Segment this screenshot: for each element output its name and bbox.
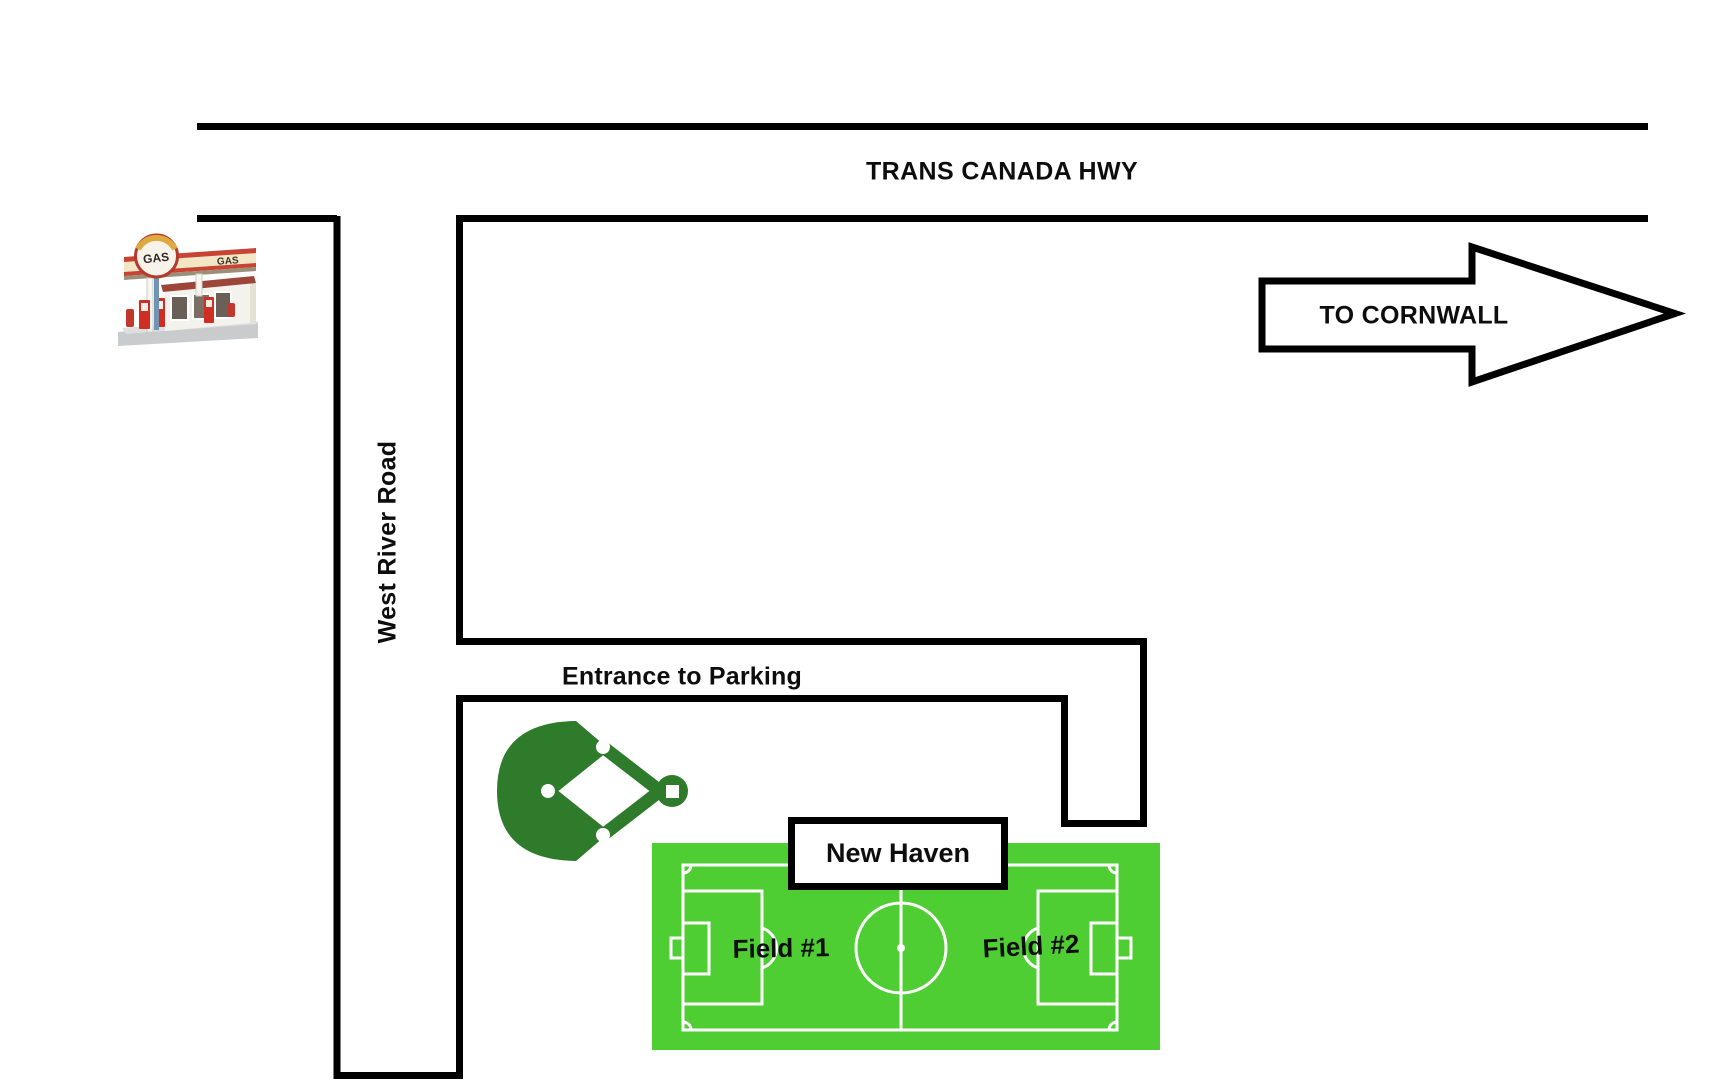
west-river-road-label: West River Road xyxy=(376,441,401,644)
gas-window xyxy=(171,296,188,320)
baseball-base xyxy=(541,784,555,798)
gas-pump-small xyxy=(228,303,235,317)
gas-station-icon: GAS GAS xyxy=(118,235,258,346)
gas-pump-screen xyxy=(141,303,148,311)
to-cornwall-label: TO CORNWALL xyxy=(1320,304,1509,329)
baseball-base xyxy=(596,740,610,754)
field-2-label: Field #2 xyxy=(982,930,1080,961)
entrance-to-parking-label: Entrance to Parking xyxy=(562,665,802,690)
baseball-home-plate xyxy=(666,785,679,798)
map-drawing: GAS GAS xyxy=(0,0,1728,1080)
directions-map: GAS GAS xyxy=(0,0,1728,1080)
new-haven-sign-text: New Haven xyxy=(826,838,970,869)
baseball-base xyxy=(596,828,610,842)
baseball-diamond-icon xyxy=(497,721,688,861)
gas-column xyxy=(196,274,202,296)
new-haven-sign: New Haven xyxy=(788,817,1008,890)
gas-pump-small xyxy=(126,309,134,327)
gas-pump-screen xyxy=(206,300,212,307)
gas-building-side xyxy=(250,281,256,323)
highway-label: TRANS CANADA HWY xyxy=(866,160,1138,185)
field-1-label: Field #1 xyxy=(732,934,829,962)
gas-sign-text: GAS xyxy=(142,250,169,267)
pitch-center-dot xyxy=(897,944,905,952)
gas-canopy-text: GAS xyxy=(217,255,240,268)
